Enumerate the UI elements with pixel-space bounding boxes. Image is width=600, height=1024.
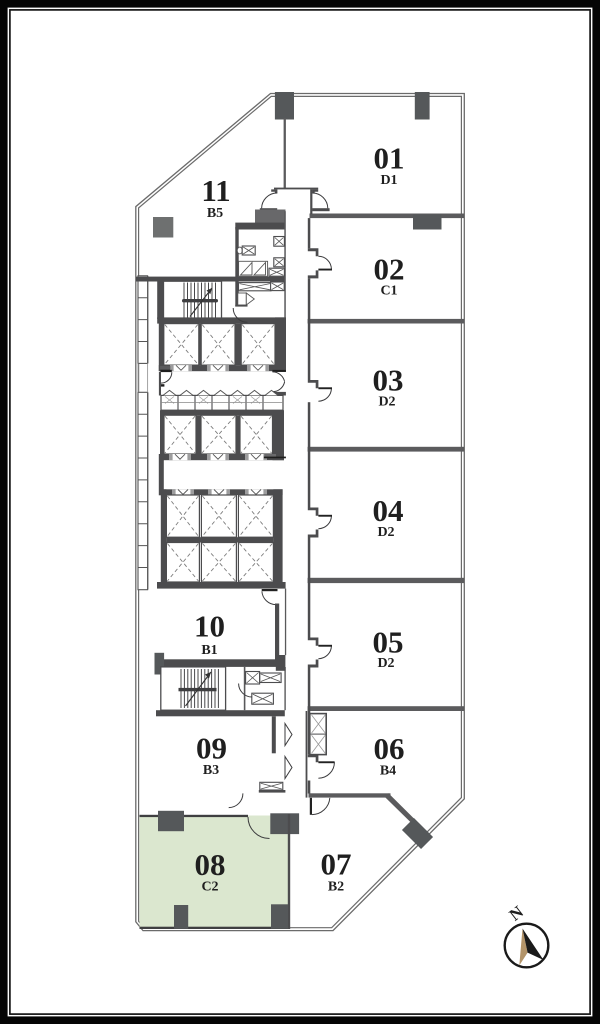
svg-text:03: 03 xyxy=(373,363,404,398)
svg-text:09: 09 xyxy=(196,731,227,766)
svg-text:10: 10 xyxy=(194,609,225,644)
svg-text:08: 08 xyxy=(195,847,226,882)
svg-text:02: 02 xyxy=(374,252,405,287)
svg-text:B4: B4 xyxy=(380,764,396,779)
svg-text:C2: C2 xyxy=(201,880,218,895)
svg-text:B2: B2 xyxy=(328,880,344,895)
svg-text:01: 01 xyxy=(374,141,405,176)
svg-text:B1: B1 xyxy=(201,643,217,658)
svg-text:D2: D2 xyxy=(378,395,395,410)
svg-text:C1: C1 xyxy=(380,284,397,299)
svg-text:04: 04 xyxy=(373,493,404,528)
svg-text:B5: B5 xyxy=(207,206,223,221)
svg-text:B3: B3 xyxy=(203,763,219,778)
svg-text:11: 11 xyxy=(201,173,230,208)
svg-text:05: 05 xyxy=(373,625,404,660)
svg-text:D2: D2 xyxy=(377,656,394,671)
svg-text:06: 06 xyxy=(374,731,405,766)
svg-text:D1: D1 xyxy=(380,173,397,188)
svg-text:D2: D2 xyxy=(377,525,394,540)
svg-text:07: 07 xyxy=(321,847,352,882)
